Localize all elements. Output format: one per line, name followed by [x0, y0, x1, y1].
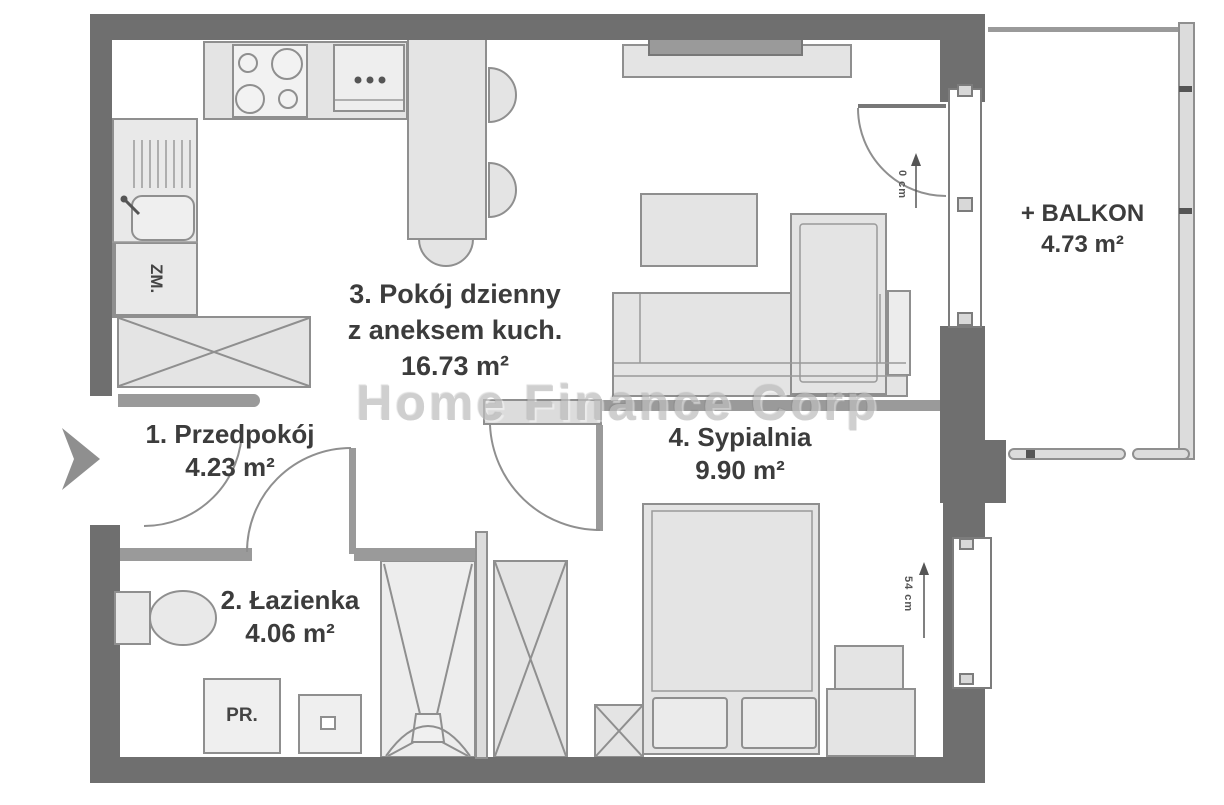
wall-bottom [90, 757, 985, 783]
living-room-name2: z aneksem kuch. [320, 312, 590, 348]
watermark: Home Finance Corp [278, 374, 958, 432]
door-leaf-bedroom [596, 425, 603, 531]
bedroom-window-sq-top [959, 538, 974, 550]
balcony-door-dim-text: 0 cm [896, 170, 908, 230]
washing-machine-label: PR. [226, 705, 258, 727]
balcony-railing-bottom-2 [1132, 448, 1190, 460]
hallway-area: 4.23 m² [110, 451, 350, 484]
window-mullion-top [957, 84, 973, 97]
bathroom-name: 2. Łazienka [190, 584, 390, 617]
wall-top [90, 14, 985, 40]
kitchen-drawer-unit [333, 44, 405, 112]
wall-bathroom-east [475, 531, 488, 759]
entrance-arrow-icon [62, 428, 100, 490]
railing-tick-1 [1179, 86, 1192, 92]
window-mullion-mid [957, 197, 973, 212]
wall-left-lower [90, 525, 120, 760]
bathroom-label: 2. Łazienka 4.06 m² [190, 584, 390, 650]
kitchen-peninsula [407, 38, 487, 240]
dishwasher-unit: ZM. [114, 242, 198, 316]
window-mullion-bottom [957, 312, 973, 326]
sofa-armrest [887, 290, 911, 376]
wall-bathroom-north-right [354, 548, 480, 561]
stove [232, 44, 308, 118]
wall-right-pillar [940, 440, 1006, 503]
washing-machine: PR. [203, 678, 281, 754]
wall-hallway-kitchen [118, 394, 260, 407]
dim-arrow-balcony-door [911, 153, 921, 208]
bedroom-wardrobe [493, 560, 568, 758]
bedroom-window-dim-text: 54 cm [902, 576, 914, 642]
floor-plan: ZM. PR. [0, 0, 1224, 805]
dresser-back [834, 645, 904, 690]
railing-tick-2 [1179, 208, 1192, 214]
bedroom-window [952, 537, 992, 689]
bedroom-window-sq-bottom [959, 673, 974, 685]
pillow-left [652, 697, 728, 749]
balcony-label: + BALKON 4.73 m² [995, 198, 1170, 260]
balcony-top-line [988, 27, 1178, 32]
wall-bathroom-north-left [120, 548, 252, 561]
door-arc-bedroom [490, 425, 600, 530]
wall-left-upper [90, 14, 112, 396]
living-room-label: 3. Pokój dzienny z aneksem kuch. 16.73 m… [320, 276, 590, 384]
balcony-area: 4.73 m² [995, 229, 1170, 260]
living-room-name: 3. Pokój dzienny [320, 276, 590, 312]
railing-tick-3 [1026, 450, 1035, 458]
bathroom-sink-drain [320, 716, 336, 730]
bathroom-area: 4.06 m² [190, 617, 390, 650]
balcony-name: + BALKON [995, 198, 1170, 229]
door-leaf-bathroom [349, 448, 356, 554]
coffee-table [640, 193, 758, 267]
bedroom-area: 9.90 m² [640, 454, 840, 487]
pillow-right [741, 697, 817, 749]
sofa-corner-section [790, 213, 887, 395]
dim-arrow-bedroom-window [919, 562, 929, 638]
dresser [826, 688, 916, 757]
nightstand [594, 704, 644, 758]
shower [380, 560, 476, 758]
dishwasher-label: ZM. [146, 264, 166, 293]
